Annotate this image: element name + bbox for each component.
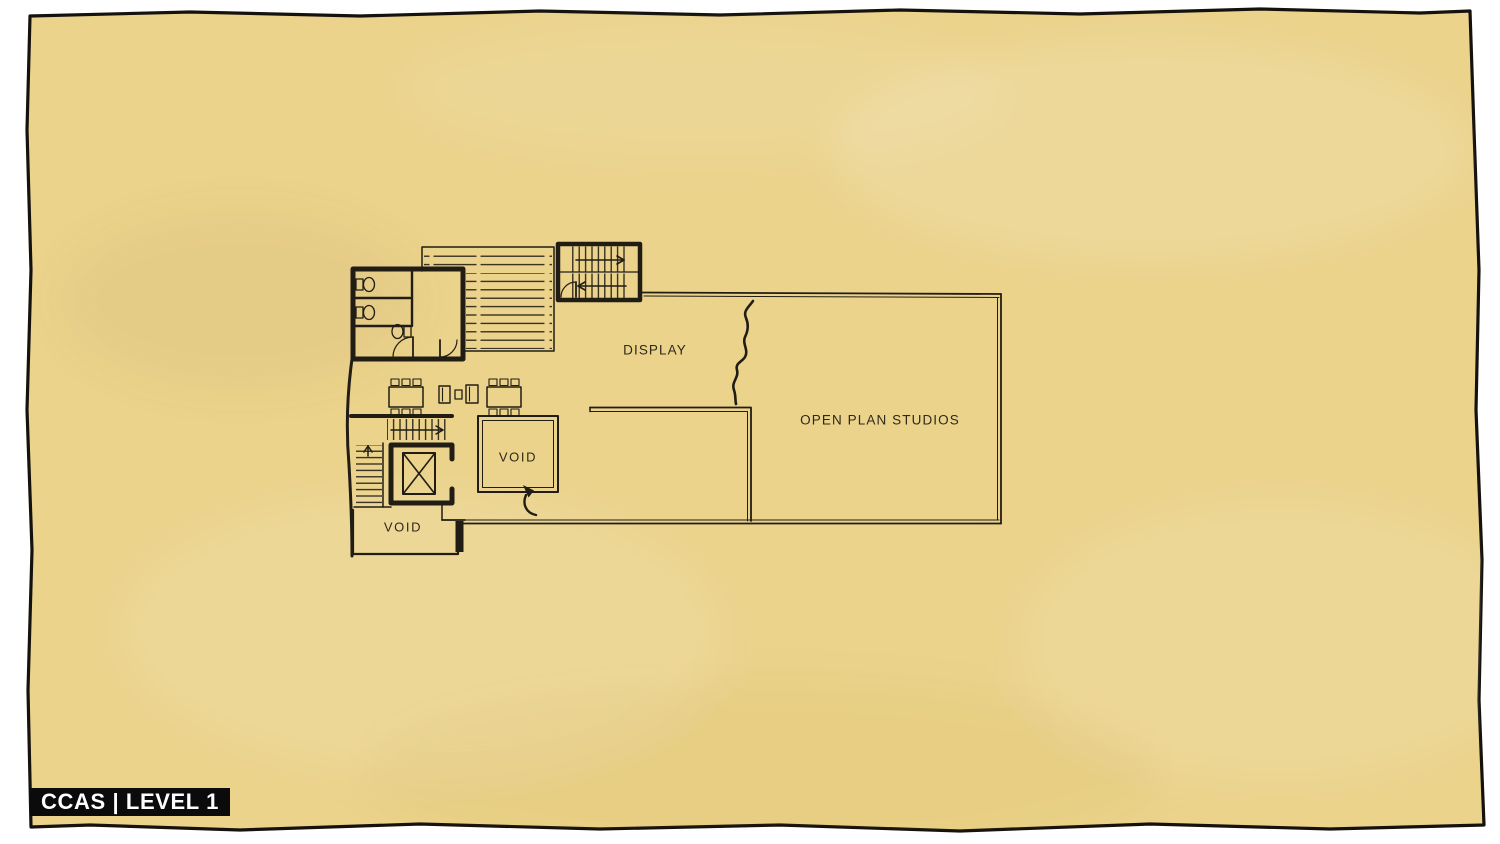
room-label-void-lower-left: VOID xyxy=(384,520,422,535)
room-label-display: DISPLAY xyxy=(623,343,687,358)
stair-treads xyxy=(572,247,628,272)
level-title-badge: CCAS | LEVEL 1 xyxy=(30,788,230,816)
room-label-void-center: VOID xyxy=(499,450,537,465)
room-label-open-plan-studios: OPEN PLAN STUDIOS xyxy=(800,413,960,428)
floor-plan-drawing xyxy=(0,0,1500,844)
floor-plan-page: DISPLAY OPEN PLAN STUDIOS VOID VOID CCAS… xyxy=(0,0,1500,844)
stair-treads xyxy=(356,445,382,505)
